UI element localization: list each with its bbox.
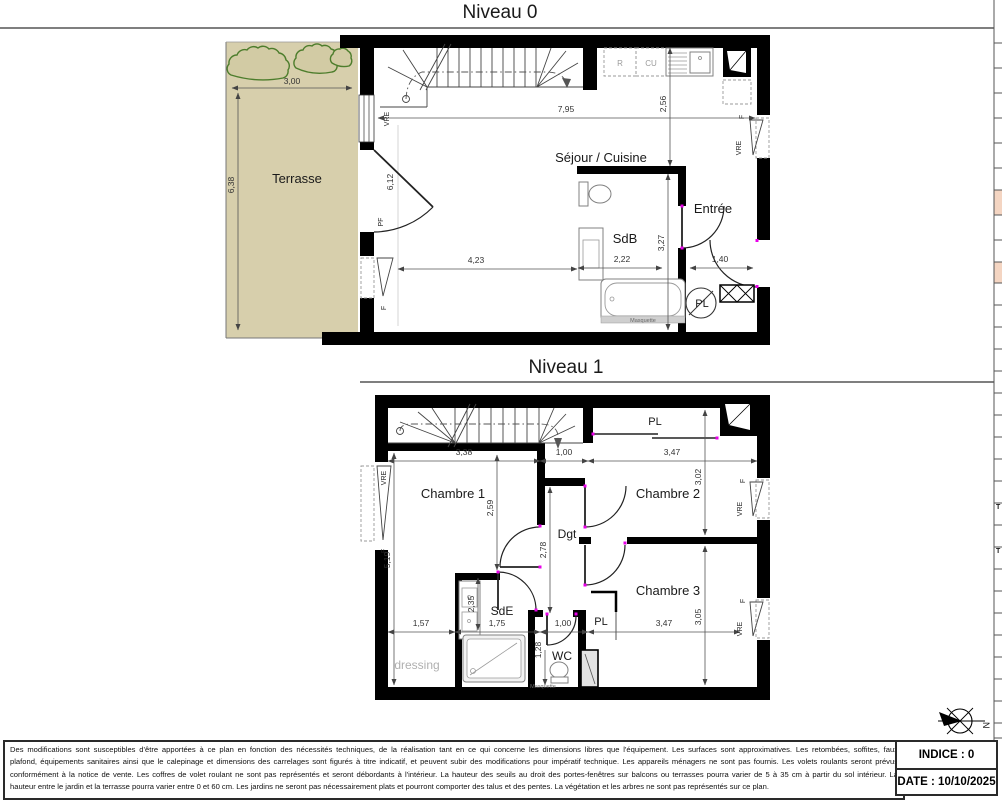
dim-kitchen-depth: 2,56 (658, 95, 668, 112)
sejour-label: Séjour / Cuisine (555, 150, 647, 165)
chambre2-label: Chambre 2 (636, 486, 700, 501)
dgt-label: Dgt (558, 527, 577, 541)
north-label: N (981, 722, 991, 729)
sdb-label: SdB (613, 231, 638, 246)
disclaimer-line: plafond, équipements sanitaires ainsi qu… (10, 756, 898, 768)
level1-walls (375, 395, 770, 700)
wc-area: WC 1,28 (533, 641, 598, 687)
pl3-label: PL (594, 616, 607, 628)
cooktop-label: CU (645, 59, 657, 68)
vent-grille (720, 285, 754, 302)
window-vre-ch3-label: VRE (737, 621, 744, 636)
dim-terrace-height: 6,38 (226, 176, 236, 193)
level1-left-openings: VRE F (361, 466, 391, 553)
date-cell: DATE : 10/10/2025 (895, 768, 998, 796)
disclaimer-box: Des modifications sont susceptibles d'êt… (3, 740, 905, 800)
north-compass: N (938, 708, 991, 734)
dressing-area: dressing (394, 658, 439, 672)
chambre1-label: Chambre 1 (421, 486, 485, 501)
level0-left-openings: VRE PF 6,12 F (359, 95, 433, 310)
window-vre-ch2-label: VRE (737, 501, 744, 516)
dim-ch3-height: 3,05 (693, 608, 703, 625)
window-f-right-label: F (739, 115, 746, 119)
window-f-ch3-label: F (740, 599, 747, 603)
window-f-left-label: F (381, 306, 388, 310)
duct-shaft-level1 (720, 400, 758, 436)
window-vre-left-l1-label: VRE (381, 470, 388, 485)
shaft-bottom (581, 650, 598, 687)
dim-total-width: 7,95 (558, 104, 575, 114)
wc-label: WC (552, 649, 572, 663)
chambre3-area: Chambre 3 3,05 PL (591, 546, 705, 685)
dim-sde-depth: 2,35 (466, 595, 476, 612)
side-table-t2: T (996, 548, 1001, 555)
window-vre-right-label: VRE (736, 140, 743, 155)
chambre2-window: F VRE (737, 479, 769, 518)
indice-cell: INDICE : 0 (895, 740, 998, 768)
dim-sde-width: 1,75 (489, 618, 506, 628)
dressing-label: dressing (394, 658, 439, 672)
shower-mask-label: Masquette (530, 684, 556, 690)
dim-terrace-width: 3,00 (284, 76, 301, 86)
dim-ch1-height: 2,59 (485, 499, 495, 516)
tub-mask-label: Masquette (630, 318, 656, 324)
dim-sdb-width: 2,22 (614, 254, 631, 264)
disclaimer-line: hauteur entre le jardin et la terrasse p… (10, 781, 898, 793)
dim-hall-width: 1,00 (556, 447, 573, 457)
dim-left-height: 6,12 (385, 173, 395, 190)
level0-staircase (380, 44, 583, 107)
chambre2-area: Chambre 2 3,02 (636, 410, 705, 535)
side-table-t1: T (996, 504, 1001, 511)
kitchen-area: R CU 2,56 (604, 47, 751, 166)
dim-dgt-height: 2,78 (538, 541, 548, 558)
water-heater: PL (686, 288, 716, 318)
entree-area: Entrée 1,40 PL (686, 201, 754, 318)
pl-circle-label: PL (695, 298, 708, 310)
shower (463, 635, 525, 682)
kitchen-sink (666, 48, 713, 76)
entree-label: Entrée (694, 201, 732, 216)
level1-staircase (388, 404, 583, 449)
dim-ch3-width: 3,47 (656, 618, 673, 628)
bathtub: Masquette (601, 279, 685, 324)
sde-label: SdE (491, 604, 514, 618)
dim-ch1-width: 3,38 (456, 447, 473, 457)
floorplan-document: Niveau 0 Niveau 1 Terrasse 3,00 6,38 (0, 0, 1002, 800)
window-vre-left-label: VRE (384, 111, 391, 126)
level0-header: Niveau 0 (0, 2, 994, 28)
fridge-label: R (617, 59, 623, 68)
chambre3-window: F VRE (737, 599, 769, 638)
revision-stamp: INDICE : 0 DATE : 10/10/2025 (895, 740, 998, 796)
dim-wc-width: 1,00 (555, 618, 572, 628)
window-f-ch2-label: F (740, 479, 747, 483)
window-f-left-l1-label: F (381, 549, 388, 553)
dim-sejour-width: 4,23 (468, 255, 485, 265)
chambre3-label: Chambre 3 (636, 583, 700, 598)
dim-ch2-height: 3,02 (693, 468, 703, 485)
dim-ch2-width: 3,47 (664, 447, 681, 457)
level1-top-dims: 3,38 1,00 3,47 PL (388, 400, 758, 461)
terrace-area: Terrasse 3,00 6,38 (226, 42, 360, 338)
terrace-label: Terrasse (272, 171, 322, 186)
pl-top-label: PL (648, 416, 661, 428)
side-table-truncated: T T (994, 0, 1002, 740)
door-pf-label: PF (378, 218, 385, 227)
level1-title: Niveau 1 (529, 357, 604, 378)
floorplan-drawing: Niveau 0 Niveau 1 Terrasse 3,00 6,38 (0, 0, 1002, 740)
dim-wc-height: 1,28 (533, 641, 543, 658)
dim-sdb-height: 3,27 (656, 234, 666, 251)
level1-header: Niveau 1 (360, 357, 994, 382)
dim-dressing-width: 1,57 (413, 618, 430, 628)
disclaimer-line: conformément à la notice de vente. Les c… (10, 769, 898, 781)
level1-bottom-dims: 1,57 1,75 1,00 3,47 (388, 618, 740, 632)
level0-title: Niveau 0 (463, 2, 538, 23)
sde-area: SdE Masquette 2,35 (459, 578, 556, 690)
dim-entree-width: 1,40 (712, 254, 729, 264)
duct-shaft-level0 (723, 47, 751, 77)
disclaimer-line: Des modifications sont susceptibles d'êt… (10, 744, 898, 756)
